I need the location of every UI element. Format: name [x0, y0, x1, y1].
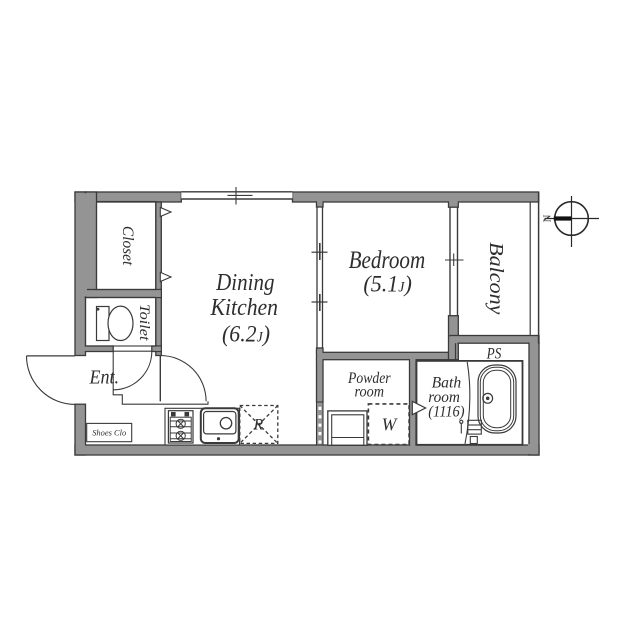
svg-text:Shoes Clo: Shoes Clo [92, 428, 126, 438]
svg-text:(1116): (1116) [428, 404, 464, 421]
svg-text:Balcony: Balcony [485, 242, 507, 315]
svg-text:(6.2J): (6.2J) [222, 322, 270, 347]
svg-text:Ent.: Ent. [89, 367, 119, 389]
svg-text:R: R [253, 417, 264, 434]
svg-text:room: room [355, 384, 385, 401]
svg-text:W: W [382, 415, 398, 435]
svg-text:PS: PS [486, 346, 502, 363]
svg-text:Bedroom: Bedroom [349, 247, 426, 274]
svg-text:Toilet: Toilet [136, 304, 152, 341]
svg-text:Kitchen: Kitchen [210, 294, 278, 321]
svg-text:Dining: Dining [215, 269, 274, 296]
svg-text:Closet: Closet [119, 226, 136, 266]
svg-text:N: N [543, 214, 554, 222]
svg-text:(5.1J): (5.1J) [363, 272, 412, 297]
